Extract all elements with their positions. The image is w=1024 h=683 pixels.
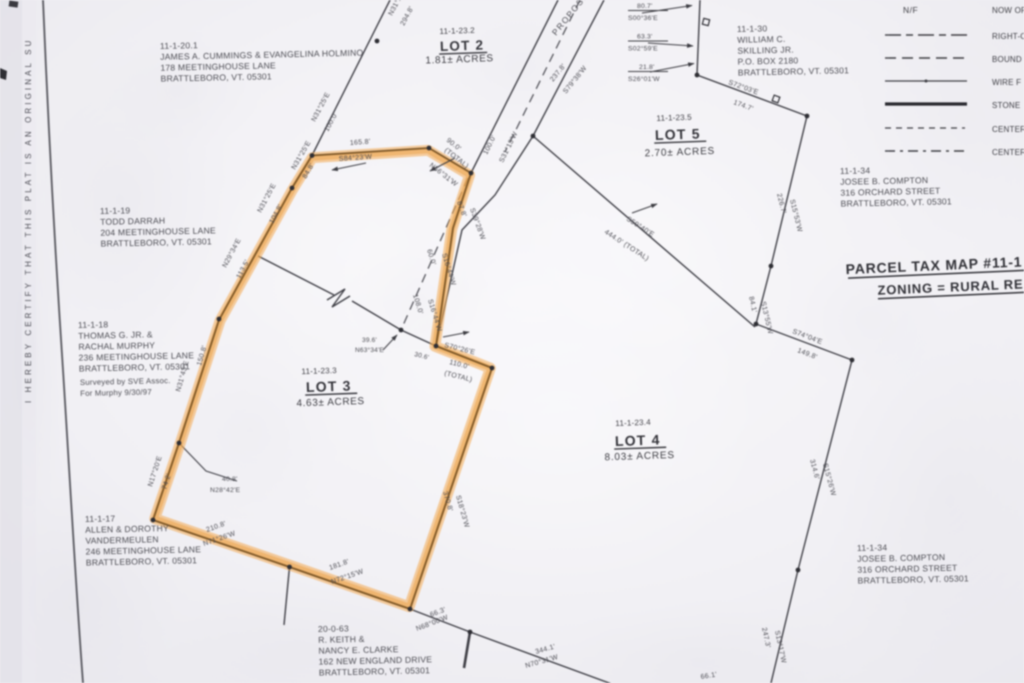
svg-text:TODD DARRAH: TODD DARRAH <box>100 216 165 227</box>
svg-text:S02°59'E: S02°59'E <box>628 45 658 53</box>
svg-text:VANDERMEULEN: VANDERMEULEN <box>85 534 159 546</box>
svg-text:11-1-23.5: 11-1-23.5 <box>656 113 692 123</box>
svg-text:JOSEE B. COMPTON: JOSEE B. COMPTON <box>840 175 928 187</box>
svg-text:RIGHT-O: RIGHT-O <box>992 32 1024 41</box>
svg-text:CENTER: CENTER <box>992 125 1024 134</box>
svg-text:BOUND: BOUND <box>992 55 1022 64</box>
svg-text:40.8': 40.8' <box>222 476 238 483</box>
svg-text:11-1-23.2: 11-1-23.2 <box>439 26 475 36</box>
svg-text:NOW OR: NOW OR <box>992 6 1024 15</box>
svg-text:N28°42'E: N28°42'E <box>210 486 240 494</box>
svg-text:LOT 3: LOT 3 <box>306 377 352 395</box>
svg-text:11-1-20.1: 11-1-20.1 <box>160 40 198 51</box>
svg-text:20-0-63: 20-0-63 <box>318 623 349 634</box>
svg-text:Surveyed by SVE Assoc.: Surveyed by SVE Assoc. <box>80 376 171 387</box>
svg-text:11-1-19: 11-1-19 <box>100 205 131 216</box>
svg-text:JOSEE B. COMPTON: JOSEE B. COMPTON <box>857 552 945 564</box>
svg-text:11-1-23.3: 11-1-23.3 <box>301 366 337 376</box>
svg-text:WILLIAM C.: WILLIAM C. <box>737 34 786 45</box>
svg-text:I HEREBY CERTIFY THAT THIS PLA: I HEREBY CERTIFY THAT THIS PLAT IS AN OR… <box>24 38 33 403</box>
svg-text:WIRE F: WIRE F <box>992 78 1021 87</box>
svg-text:For Murphy 9/30/97: For Murphy 9/30/97 <box>80 387 152 397</box>
svg-text:S00°36'E: S00°36'E <box>628 14 658 22</box>
svg-text:LOT 5: LOT 5 <box>655 125 701 143</box>
svg-text:11-1-17: 11-1-17 <box>85 513 116 524</box>
svg-text:R. KEITH &: R. KEITH & <box>318 634 365 645</box>
svg-text:11-1-34: 11-1-34 <box>857 542 888 553</box>
svg-text:S26°01'W: S26°01'W <box>628 75 660 83</box>
svg-text:11-1-30: 11-1-30 <box>737 23 768 34</box>
svg-text:P.O. BOX 2180: P.O. BOX 2180 <box>738 55 799 66</box>
svg-text:63.3': 63.3' <box>637 34 653 41</box>
svg-text:80.7': 80.7' <box>637 3 653 10</box>
svg-text:21.8': 21.8' <box>639 64 655 71</box>
svg-text:NANCY E. CLARKE: NANCY E. CLARKE <box>318 644 398 656</box>
svg-text:165.8': 165.8' <box>350 139 371 147</box>
svg-text:THOMAS G. JR. &: THOMAS G. JR. & <box>78 329 153 341</box>
svg-text:11-1-18: 11-1-18 <box>78 319 109 330</box>
svg-text:STONE: STONE <box>992 101 1020 110</box>
svg-text:N63°34'E: N63°34'E <box>355 346 384 354</box>
svg-text:LOT 4: LOT 4 <box>615 431 661 449</box>
svg-text:RACHAL MURPHY: RACHAL MURPHY <box>78 340 155 352</box>
svg-text:LOT 2: LOT 2 <box>440 37 485 54</box>
svg-text:N/F: N/F <box>903 5 918 15</box>
svg-text:39.6': 39.6' <box>362 337 377 344</box>
svg-text:ALLEN & DOROTHY: ALLEN & DOROTHY <box>85 523 169 535</box>
svg-text:11-1-23.4: 11-1-23.4 <box>615 418 651 428</box>
svg-text:CENTER: CENTER <box>992 148 1024 157</box>
svg-text:11-1-34: 11-1-34 <box>840 165 871 176</box>
svg-text:SKILLING JR.: SKILLING JR. <box>737 45 794 56</box>
